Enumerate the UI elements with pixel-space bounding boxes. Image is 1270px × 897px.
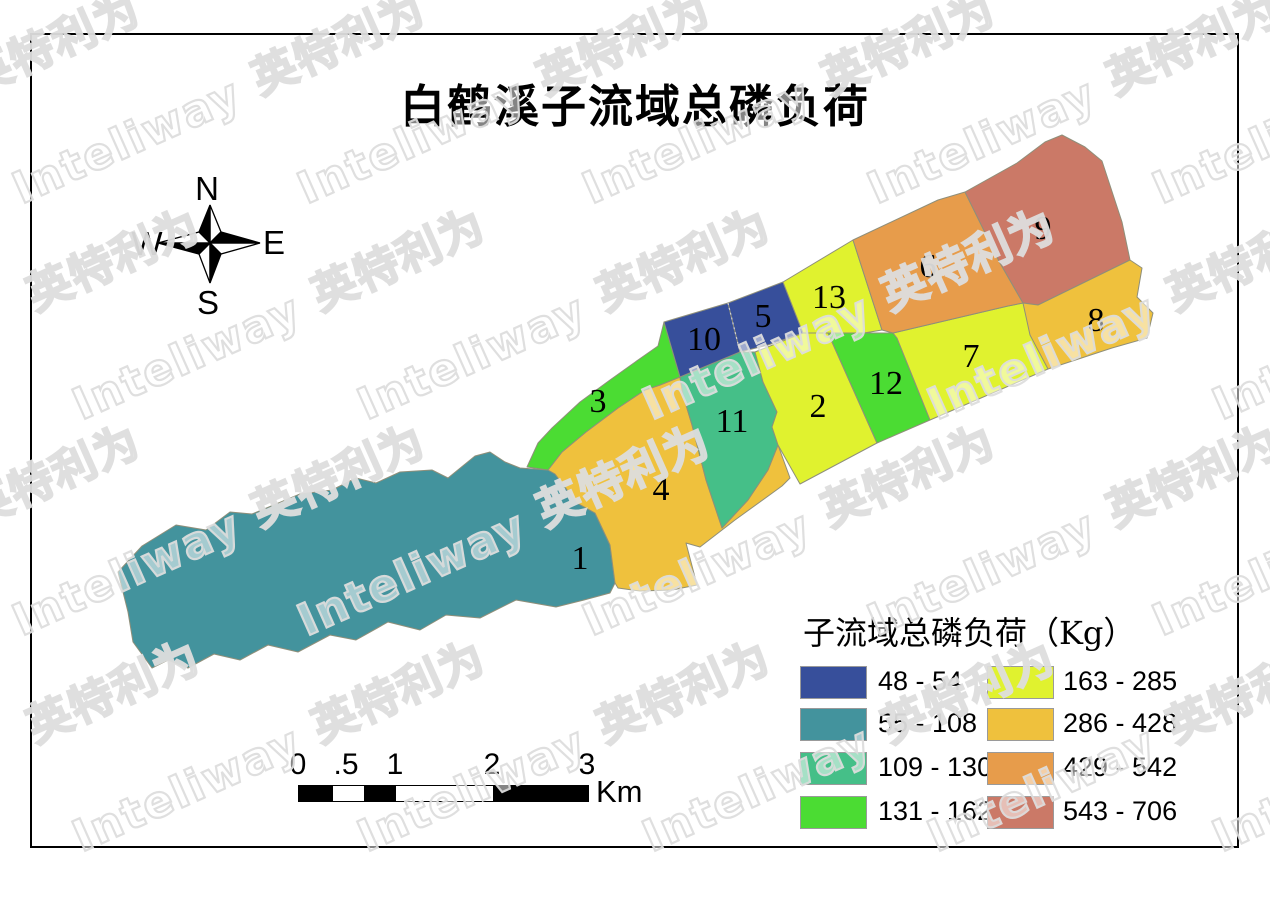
map-frame-border [30,33,1239,848]
map-page: 白鹤溪子流域总磷负荷 N E S W 1 2 [0,0,1270,897]
